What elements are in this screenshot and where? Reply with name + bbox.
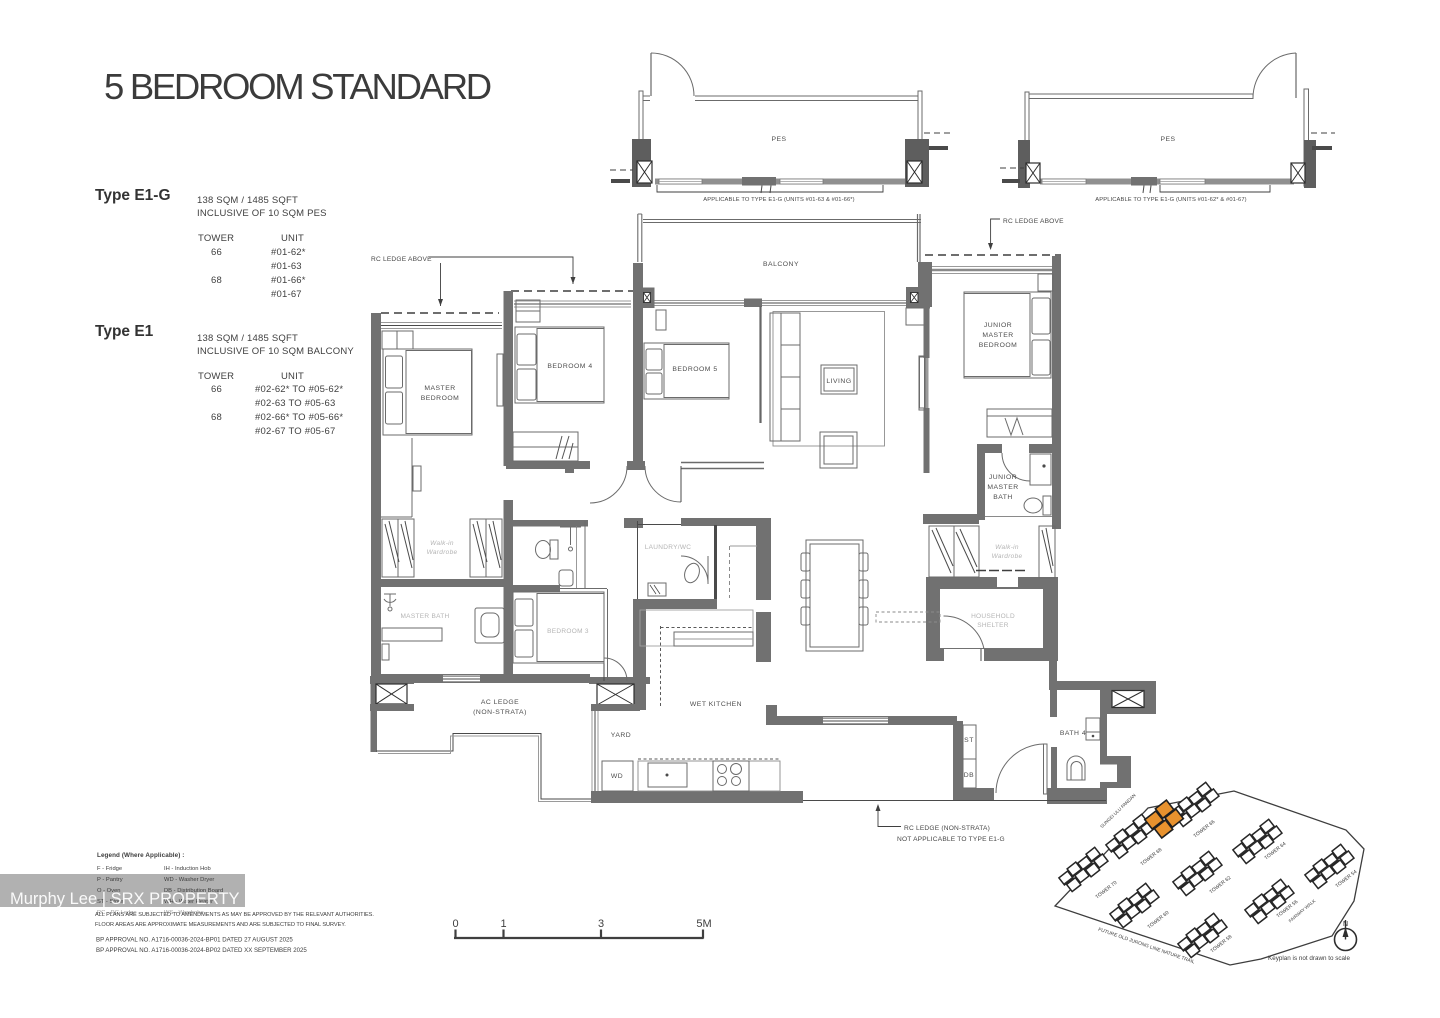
svg-text:TOWER: TOWER [198,371,234,382]
svg-text:BEDROOM 4: BEDROOM 4 [547,363,592,370]
svg-text:Type E1-G: Type E1-G [95,187,171,204]
svg-text:Wardrobe: Wardrobe [427,549,458,556]
svg-text:1: 1 [500,918,506,930]
svg-text:Murphy Lee | SRX PROPERTY: Murphy Lee | SRX PROPERTY [10,890,240,908]
svg-text:#02-66* TO #05-66*: #02-66* TO #05-66* [255,412,343,423]
svg-text:YARD: YARD [611,732,631,739]
svg-text:138 SQM / 1485 SQFT: 138 SQM / 1485 SQFT [197,333,298,344]
svg-text:#02-63 TO #05-63: #02-63 TO #05-63 [255,398,336,409]
svg-text:RC LEDGE ABOVE: RC LEDGE ABOVE [371,256,432,263]
svg-text:68: 68 [211,275,222,286]
svg-text:WD: WD [611,773,623,780]
svg-text:5 BEDROOM STANDARD: 5 BEDROOM STANDARD [104,66,491,107]
svg-text:RC LEDGE (NON-STRATA): RC LEDGE (NON-STRATA) [904,825,990,832]
svg-text:BP APPROVAL NO. A1716-00036-20: BP APPROVAL NO. A1716-00036-2024-BP02 DA… [96,947,307,954]
svg-text:66: 66 [211,384,222,395]
svg-text:(NON-STRATA): (NON-STRATA) [473,709,527,716]
svg-text:BEDROOM 5: BEDROOM 5 [672,366,717,373]
svg-text:HOUSEHOLD: HOUSEHOLD [971,613,1015,620]
svg-text:#01-63: #01-63 [271,261,302,272]
svg-text:PES: PES [1160,136,1175,143]
svg-text:#02-62* TO #05-62*: #02-62* TO #05-62* [255,384,343,395]
svg-text:BEDROOM: BEDROOM [421,395,460,402]
svg-text:Type E1: Type E1 [95,323,154,340]
svg-text:ALL PLANS ARE SUBJECTED TO AME: ALL PLANS ARE SUBJECTED TO AMENDMENTS AS… [95,912,374,918]
svg-text:UNIT: UNIT [281,233,304,244]
svg-text:RC LEDGE ABOVE: RC LEDGE ABOVE [1003,218,1064,225]
svg-text:BEDROOM 3: BEDROOM 3 [547,628,589,635]
svg-text:ST: ST [964,737,974,744]
svg-text:WET KITCHEN: WET KITCHEN [690,701,742,708]
svg-text:MASTER: MASTER [987,484,1018,491]
svg-text:UNIT: UNIT [281,371,304,382]
svg-text:APPLICABLE TO TYPE E1-G (UNITS: APPLICABLE TO TYPE E1-G (UNITS #01-63 & … [703,197,854,203]
svg-text:Legend (Where Applicable) :: Legend (Where Applicable) : [97,852,184,859]
svg-text:BALCONY: BALCONY [763,261,799,268]
svg-text:Wardrobe: Wardrobe [992,553,1023,560]
svg-text:APPLICABLE TO TYPE E1-G (UNITS: APPLICABLE TO TYPE E1-G (UNITS #01-62* &… [1095,197,1246,203]
svg-text:INCLUSIVE OF 10 SQM PES: INCLUSIVE OF 10 SQM PES [197,208,327,219]
svg-text:N: N [1343,921,1348,928]
svg-text:INCLUSIVE OF 10 SQM BALCONY: INCLUSIVE OF 10 SQM BALCONY [197,346,354,357]
svg-text:68: 68 [211,412,222,423]
svg-text:0: 0 [452,918,458,930]
svg-text:MASTER: MASTER [982,332,1013,339]
svg-text:JUNIOR: JUNIOR [984,322,1012,329]
svg-text:#02-67 TO #05-67: #02-67 TO #05-67 [255,426,336,437]
svg-text:F - Fridge: F - Fridge [97,866,122,872]
svg-text:LAUNDRY/WC: LAUNDRY/WC [645,544,692,551]
svg-text:BEDROOM: BEDROOM [979,342,1018,349]
svg-text:TOWER: TOWER [198,233,234,244]
svg-text:LIVING: LIVING [826,378,851,385]
svg-text:MASTER: MASTER [424,385,455,392]
svg-text:P - Pantry: P - Pantry [97,877,123,883]
svg-text:AC LEDGE: AC LEDGE [481,699,519,706]
svg-text:5M: 5M [696,918,711,930]
svg-text:BATH: BATH [993,494,1013,501]
svg-text:Walk-in: Walk-in [430,540,454,547]
svg-text:FLOOR AREAS ARE APPROXIMATE ME: FLOOR AREAS ARE APPROXIMATE MEASUREMENTS… [95,922,346,928]
svg-text:66: 66 [211,247,222,258]
svg-text:Walk-in: Walk-in [995,544,1019,551]
svg-text:IH - Induction Hob: IH - Induction Hob [164,866,211,872]
svg-text:WD - Washer Dryer: WD - Washer Dryer [164,877,214,883]
svg-text:#01-62*: #01-62* [271,247,306,258]
svg-text:NOT APPLICABLE TO TYPE E1-G: NOT APPLICABLE TO TYPE E1-G [897,836,1005,843]
svg-text:MASTER BATH: MASTER BATH [400,613,449,620]
svg-text:138 SQM / 1485 SQFT: 138 SQM / 1485 SQFT [197,195,298,206]
svg-text:3: 3 [598,918,604,930]
svg-text:DB: DB [964,772,974,779]
svg-text:BATH 4: BATH 4 [1060,730,1086,737]
svg-text:#01-67: #01-67 [271,289,302,300]
svg-text:PES: PES [771,136,786,143]
svg-text:SHELTER: SHELTER [977,622,1009,629]
svg-text:JUNIOR: JUNIOR [989,474,1017,481]
svg-text:#01-66*: #01-66* [271,275,306,286]
svg-text:Keyplan is not drawn to scale: Keyplan is not drawn to scale [1268,955,1350,962]
svg-text:BP APPROVAL NO. A1716-00036-20: BP APPROVAL NO. A1716-00036-2024-BP01 DA… [96,937,293,944]
